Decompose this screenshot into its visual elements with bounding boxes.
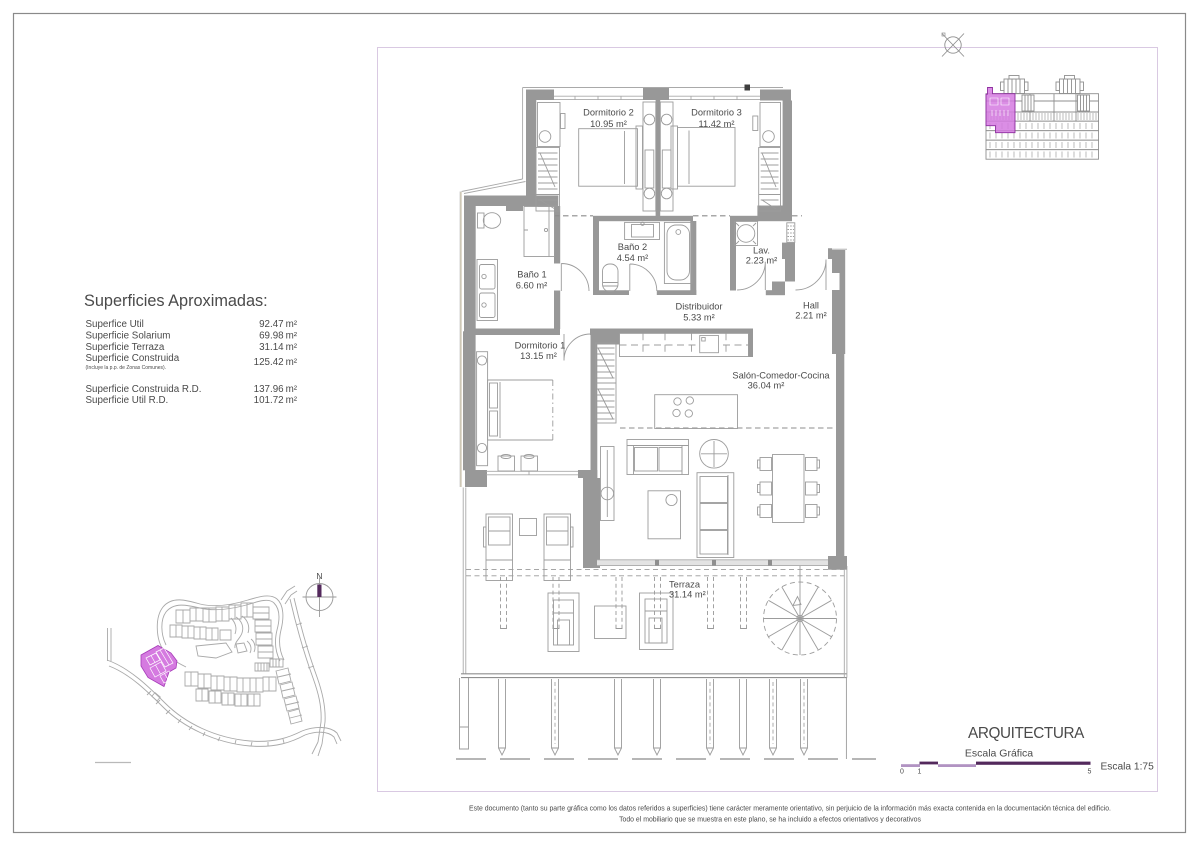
svg-text:125.42 m²: 125.42 m²: [254, 357, 298, 368]
svg-text:0: 0: [900, 769, 904, 776]
svg-text:Dormitorio 1: Dormitorio 1: [515, 341, 566, 351]
svg-text:31.14 m²: 31.14 m²: [669, 590, 706, 600]
svg-text:11.42 m²: 11.42 m²: [699, 119, 735, 129]
svg-text:Dormitorio 2: Dormitorio 2: [583, 108, 634, 118]
svg-text:Superficie Terraza: Superficie Terraza: [86, 342, 165, 353]
svg-text:5: 5: [1088, 769, 1092, 776]
svg-text:2.23 m²: 2.23 m²: [746, 256, 778, 266]
svg-text:Baño 1: Baño 1: [517, 270, 546, 280]
svg-text:Todo el mobiliario que se mues: Todo el mobiliario que se muestra en est…: [619, 817, 921, 824]
svg-text:137.96 m²: 137.96 m²: [254, 384, 298, 395]
svg-text:6.60 m²: 6.60 m²: [516, 281, 548, 291]
svg-text:Lav.: Lav.: [753, 246, 770, 256]
svg-text:Este documento (tanto su parte: Este documento (tanto su parte gráfica c…: [469, 806, 1111, 813]
svg-text:Baño 2: Baño 2: [618, 242, 647, 252]
svg-text:5.33 m²: 5.33 m²: [683, 313, 715, 323]
svg-text:Hall: Hall: [803, 301, 819, 311]
svg-text:Superficie Construida: Superficie Construida: [86, 353, 180, 364]
svg-text:Distribuidor: Distribuidor: [675, 302, 722, 312]
svg-text:36.04 m²: 36.04 m²: [748, 381, 785, 391]
svg-text:(Incluye la p.p. de Zonas Comu: (Incluye la p.p. de Zonas Comunes).: [86, 365, 167, 371]
svg-text:Salón-Comedor-Cocina: Salón-Comedor-Cocina: [732, 371, 830, 381]
svg-text:69.98 m²: 69.98 m²: [259, 331, 298, 342]
svg-text:Superficies Aproximadas:: Superficies Aproximadas:: [84, 292, 268, 310]
svg-text:101.72 m²: 101.72 m²: [254, 395, 298, 406]
svg-text:N: N: [316, 571, 322, 581]
svg-text:Escala 1:75: Escala 1:75: [1101, 762, 1155, 773]
svg-text:Superfice Util: Superfice Util: [86, 319, 144, 330]
svg-text:Escala Gráfica: Escala Gráfica: [965, 748, 1033, 760]
svg-text:31.14 m²: 31.14 m²: [259, 342, 298, 353]
svg-text:Superficie Util R.D.: Superficie Util R.D.: [86, 395, 169, 406]
svg-text:ARQUITECTURA: ARQUITECTURA: [968, 725, 1085, 742]
svg-text:Terraza: Terraza: [669, 580, 701, 590]
svg-text:Superficie Construida R.D.: Superficie Construida R.D.: [86, 384, 202, 395]
svg-text:13.15 m²: 13.15 m²: [520, 351, 557, 361]
svg-text:2.21 m²: 2.21 m²: [795, 311, 827, 321]
svg-text:10.95 m²: 10.95 m²: [590, 119, 627, 129]
svg-text:1: 1: [918, 769, 922, 776]
svg-text:4.54 m²: 4.54 m²: [617, 253, 649, 263]
svg-text:Dormitorio 3: Dormitorio 3: [691, 108, 742, 118]
svg-text:Superficie Solarium: Superficie Solarium: [86, 331, 171, 342]
svg-text:92.47 m²: 92.47 m²: [259, 319, 298, 330]
